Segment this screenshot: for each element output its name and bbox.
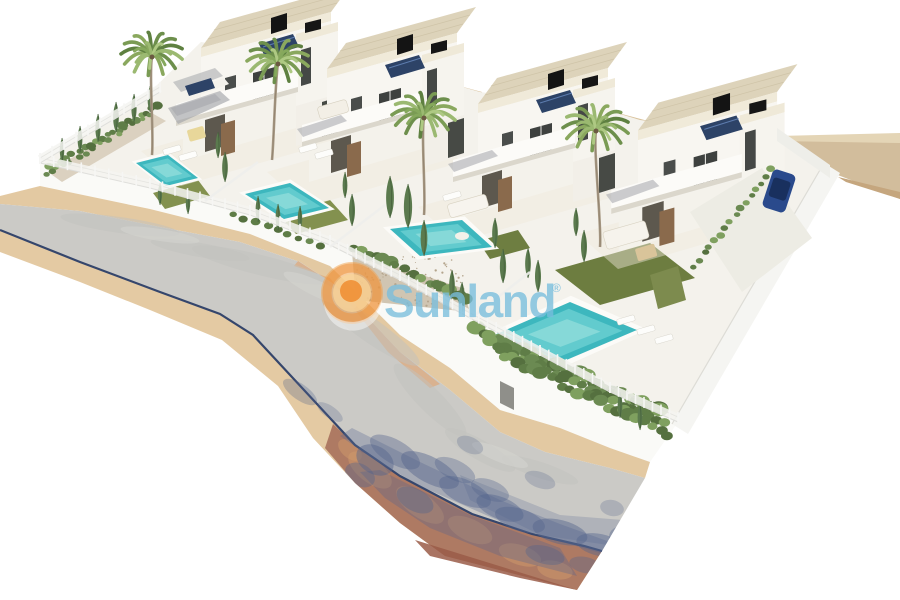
svg-text:®: ® — [552, 281, 561, 295]
svg-text:Sunland: Sunland — [384, 275, 555, 327]
